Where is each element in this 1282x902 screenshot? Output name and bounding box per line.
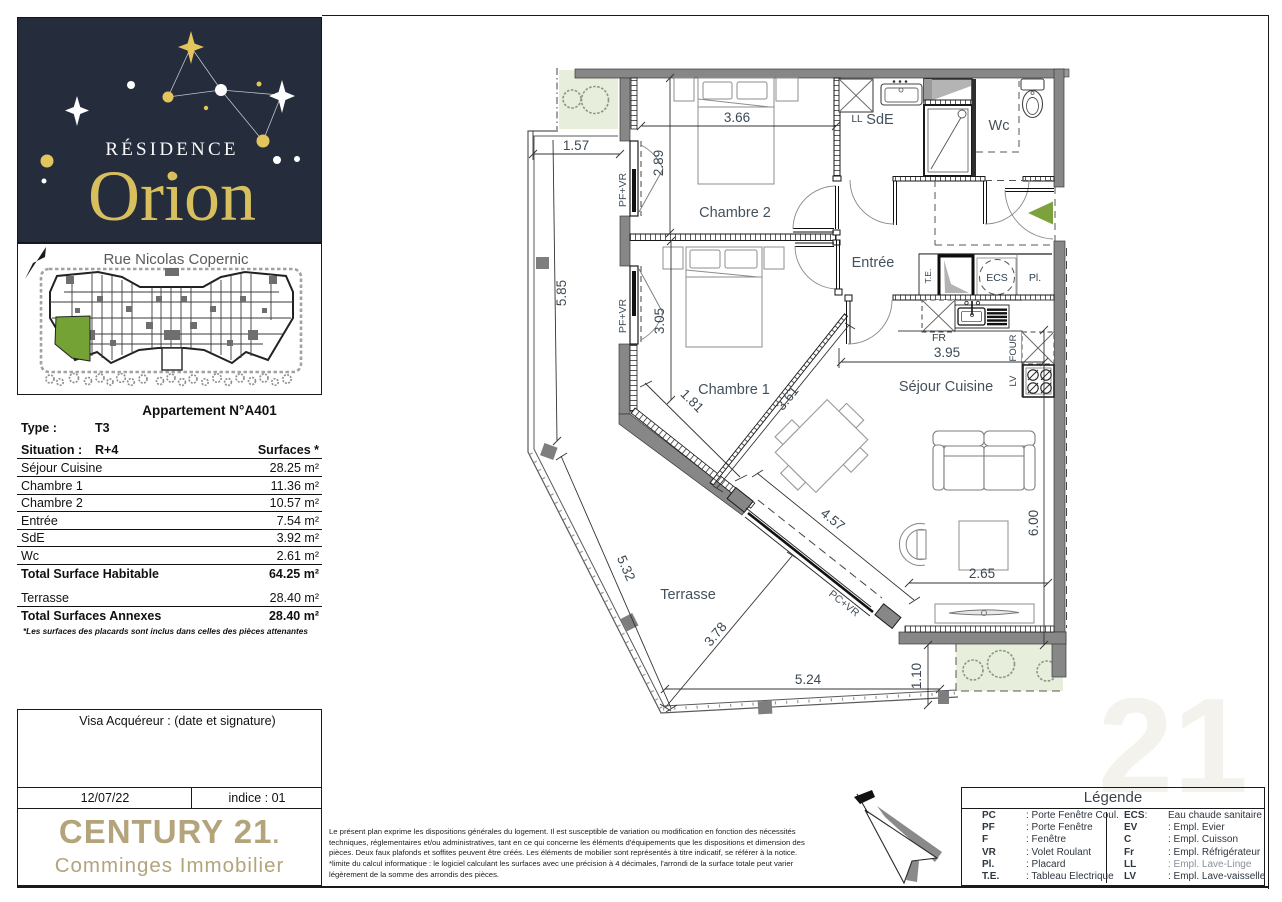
svg-text:2.65: 2.65 (969, 566, 995, 581)
svg-text:LL: LL (851, 114, 863, 125)
svg-text:Pl.: Pl. (1029, 272, 1041, 284)
svg-text:Chambre 2: Chambre 2 (699, 205, 771, 221)
svg-text:ECS: ECS (986, 272, 1008, 284)
svg-text:1.57: 1.57 (563, 138, 589, 153)
svg-text:4.57: 4.57 (818, 505, 848, 533)
svg-text:Orion: Orion (88, 156, 256, 236)
svg-text:5.32: 5.32 (614, 553, 638, 583)
svg-text:5.24: 5.24 (795, 672, 822, 687)
svg-text:FR: FR (932, 332, 946, 344)
svg-text:2.89: 2.89 (651, 150, 666, 176)
svg-text:1.10: 1.10 (909, 663, 924, 689)
svg-text:3.61: 3.61 (773, 383, 801, 413)
svg-text:6.00: 6.00 (1026, 510, 1041, 536)
svg-text:3.05: 3.05 (652, 308, 667, 334)
svg-text:Rue Nicolas Copernic: Rue Nicolas Copernic (103, 251, 249, 268)
svg-text:Chambre 1: Chambre 1 (698, 382, 770, 398)
svg-text:LV: LV (1008, 375, 1019, 387)
svg-text:Terrasse: Terrasse (660, 587, 716, 603)
svg-text:PF+VR: PF+VR (617, 173, 629, 208)
svg-text:SdE: SdE (866, 112, 894, 128)
svg-text:PF+VR: PF+VR (617, 299, 629, 334)
svg-text:5.85: 5.85 (554, 280, 569, 306)
svg-text:T.E.: T.E. (923, 269, 933, 284)
svg-text:Entrée: Entrée (852, 255, 895, 271)
svg-text:3.95: 3.95 (934, 345, 960, 360)
svg-text:Wc: Wc (989, 118, 1010, 134)
svg-text:3.78: 3.78 (701, 619, 729, 649)
svg-text:PC+VR: PC+VR (826, 588, 861, 620)
svg-text:Séjour Cuisine: Séjour Cuisine (899, 379, 993, 395)
svg-text:FOUR: FOUR (1008, 334, 1019, 361)
svg-text:3.66: 3.66 (724, 110, 750, 125)
